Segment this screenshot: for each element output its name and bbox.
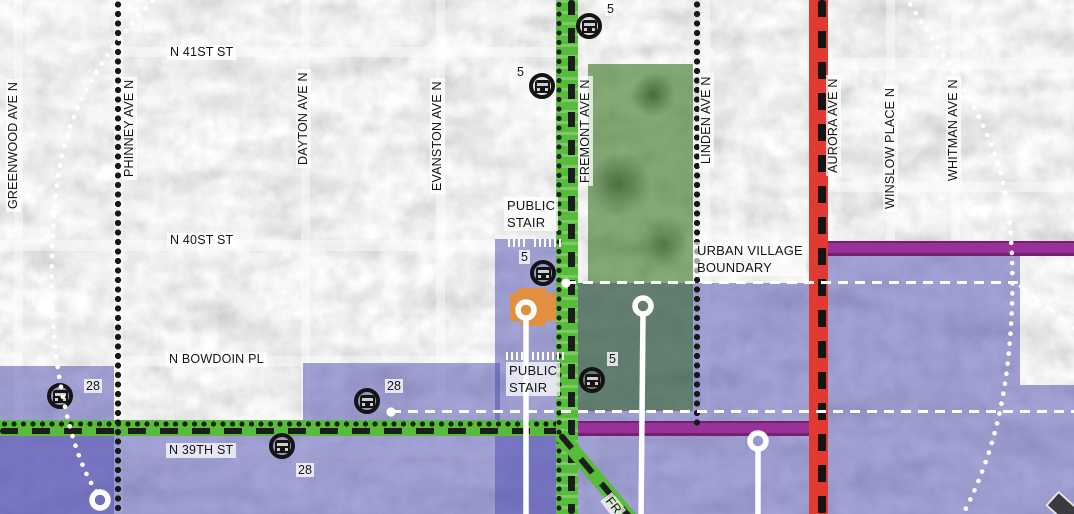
public-stair-label-lower: PUBLIC STAIR xyxy=(506,362,560,396)
bus-route-badge: 5 xyxy=(605,2,616,16)
bike-route-n39th xyxy=(0,420,578,436)
street-label-n39th: N 39TH ST xyxy=(166,443,236,458)
public-stair-label-upper: PUBLIC STAIR xyxy=(504,197,558,231)
street-label-whitman: WHITMAN AVE N xyxy=(946,76,961,184)
public-stair-line1: PUBLIC xyxy=(509,362,557,379)
urban-village-boundary-dash-south xyxy=(391,410,1074,413)
street-band xyxy=(0,240,560,251)
bus-icon xyxy=(275,440,290,453)
bus-stop-icon xyxy=(579,367,605,393)
bus-icon xyxy=(535,80,550,93)
bus-stop-icon xyxy=(529,73,555,99)
park-area-north xyxy=(588,64,693,283)
street-label-fremont: FREMONT AVE N xyxy=(578,76,593,186)
street-label-bowdoin: N BOWDOIN PL xyxy=(166,352,267,367)
public-stair-line1: PUBLIC xyxy=(507,197,555,214)
key-site-building xyxy=(508,288,558,326)
street-label-linden: LINDEN AVE N xyxy=(699,73,714,167)
aerial-planning-map[interactable]: 5 5 5 5 28 28 28 N 41ST ST N 40ST ST N B… xyxy=(0,0,1074,514)
street-label-winslow: WINSLOW PLACE N xyxy=(883,85,898,212)
bus-icon xyxy=(585,374,600,387)
urban-village-boundary-dash-north xyxy=(566,281,1024,284)
urban-village-overlay xyxy=(828,256,1020,514)
urban-village-overlay xyxy=(1020,385,1074,514)
bus-icon xyxy=(53,390,68,403)
urban-village-boundary-label: URBAN VILLAGE BOUNDARY xyxy=(694,242,806,276)
bus-icon xyxy=(536,267,551,280)
stair-hatch-upper xyxy=(508,239,564,247)
bus-stop-icon xyxy=(530,260,556,286)
street-label-greenwood: GREENWOOD AVE N xyxy=(6,79,21,212)
street-label-evanston: EVANSTON AVE N xyxy=(430,78,445,194)
bus-icon xyxy=(360,395,375,408)
bus-route-badge: 5 xyxy=(515,65,526,79)
street-label-n40st: N 40ST ST xyxy=(167,233,236,248)
bus-stop-icon xyxy=(354,388,380,414)
bus-stop-icon xyxy=(47,383,73,409)
bus-route-badge: 28 xyxy=(296,463,314,477)
bus-route-badge: 28 xyxy=(385,379,403,393)
bus-icon xyxy=(582,20,597,33)
purple-arterial-n40th-east xyxy=(828,241,1074,256)
street-label-phinney: PHINNEY AVE N xyxy=(122,77,137,180)
public-stair-line2: STAIR xyxy=(507,214,555,231)
dotted-line-phinney xyxy=(114,0,122,514)
bus-route-badge: 5 xyxy=(607,352,618,366)
bus-stop-icon xyxy=(269,433,295,459)
stair-hatch-lower xyxy=(506,352,564,360)
bus-route-badge: 5 xyxy=(519,250,530,264)
public-stair-line2: STAIR xyxy=(509,379,557,396)
urban-village-line2: BOUNDARY xyxy=(697,259,803,276)
urban-village-line1: URBAN VILLAGE xyxy=(697,242,803,259)
urban-village-boundary-dash-diagonal xyxy=(1018,284,1074,332)
street-label-aurora: AURORA AVE N xyxy=(826,75,841,176)
street-label-n41st: N 41ST ST xyxy=(167,45,236,60)
street-label-dayton: DAYTON AVE N xyxy=(296,69,311,168)
bus-route-badge: 28 xyxy=(84,379,102,393)
dotted-line-linden xyxy=(693,0,701,428)
purple-arterial-n39th-east xyxy=(568,421,811,436)
bus-stop-icon xyxy=(576,13,602,39)
